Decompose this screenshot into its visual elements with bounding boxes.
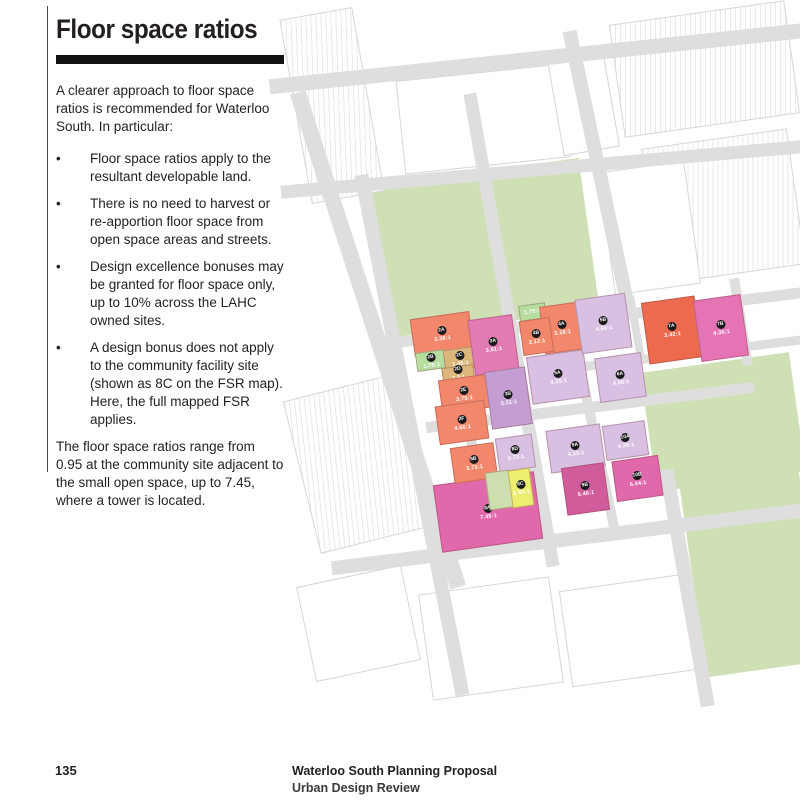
block-id-badge: 4B <box>531 328 541 338</box>
block-fsr-value: 2.12:1 <box>528 337 545 345</box>
block-fsr-value: 3.31:1 <box>500 399 517 407</box>
block-fsr-value: 6.44:1 <box>629 479 646 487</box>
block-fsr-value: 4.35:1 <box>550 378 567 386</box>
block-fsr-value: 4.36:1 <box>617 441 634 449</box>
block-fsr-value: 0.95:1 <box>513 489 530 497</box>
block-id-badge: 10A <box>620 432 630 442</box>
block-fsr-value: 3.18:1 <box>554 329 571 337</box>
block-id-badge: 7B <box>715 319 725 329</box>
block-id-badge: 10B <box>632 470 642 480</box>
footer: Waterloo South Planning Proposal Urban D… <box>292 763 497 797</box>
footer-document-title: Waterloo South Planning Proposal <box>292 763 497 780</box>
block-id-badge: 2D <box>452 364 462 374</box>
block-fsr-value: 4.13:1 <box>567 449 584 457</box>
fsr-block-10A: 10A4.36:1 <box>602 420 649 461</box>
block-id-badge: 8C <box>515 479 525 489</box>
block-id-badge: 4A <box>556 319 566 329</box>
block-id-badge: 2E <box>458 385 468 395</box>
block-fsr-value: 4.86:1 <box>612 378 629 386</box>
block-fsr-value: 7.45:1 <box>480 513 497 521</box>
block-id-badge: 7A <box>666 321 676 331</box>
block-id-badge: 8B <box>468 454 478 464</box>
map-building <box>296 565 421 682</box>
block-id-badge: 3B <box>503 389 513 399</box>
fsr-block-7B: 7B4.36:1 <box>693 294 749 362</box>
block-fsr-value: 3.42:1 <box>664 331 681 339</box>
block-id-badge: 2C <box>454 350 464 360</box>
block-id-badge: 9B <box>580 480 590 490</box>
map-panel: 2A3.36:12B1.75:12C1.45:12D2.2:12E3.75:12… <box>0 0 800 809</box>
map-building <box>559 574 698 688</box>
fsr-block-3A: 3A3.81:1 <box>467 314 519 376</box>
fsr-block-10B: 10B6.44:1 <box>611 455 663 502</box>
fsr-block-6A: 6A4.86:1 <box>594 352 647 403</box>
map-building <box>609 0 800 138</box>
block-id-badge: 8D <box>510 444 520 454</box>
block-id-badge: 2A <box>436 325 446 335</box>
page-number: 135 <box>55 763 77 778</box>
block-id-badge: 3A <box>488 336 498 346</box>
fsr-block-8D: 8D4.73:1 <box>495 434 536 473</box>
block-fsr-value: 4.73:1 <box>507 454 524 462</box>
fsr-block-4B: 4B2.12:1 <box>519 317 555 356</box>
fsr-block-9B: 9B6.46:1 <box>561 462 610 516</box>
fsr-block-5B: 5B4.66:1 <box>574 293 632 355</box>
block-id-badge: 5B <box>598 315 608 325</box>
block-fsr-value: 4.66:1 <box>595 324 612 332</box>
block-id-badge: 6A <box>615 369 625 379</box>
block-id-badge: 9A <box>570 440 580 450</box>
block-fsr-value: 4.36:1 <box>713 329 730 337</box>
block-id-badge: 2F <box>456 414 466 424</box>
block-fsr-value: 6.46:1 <box>577 490 594 498</box>
fsr-block-2F: 2F4.66:1 <box>435 400 490 446</box>
block-fsr-value: 3.81:1 <box>485 346 502 354</box>
block-id-badge: 2B <box>425 352 435 362</box>
block-fsr-value: 3.36:1 <box>434 335 451 343</box>
block-fsr-value: 1.75:1 <box>423 361 440 369</box>
block-id-badge: 5A <box>552 368 562 378</box>
fsr-block-3B: 3B3.31:1 <box>484 366 533 429</box>
footer-document-subtitle: Urban Design Review <box>292 780 497 797</box>
block-fsr-value: 4.66:1 <box>454 423 471 431</box>
block-fsr-value: 3.73:1 <box>466 464 483 472</box>
fsr-block-5A: 5A4.35:1 <box>526 349 590 405</box>
